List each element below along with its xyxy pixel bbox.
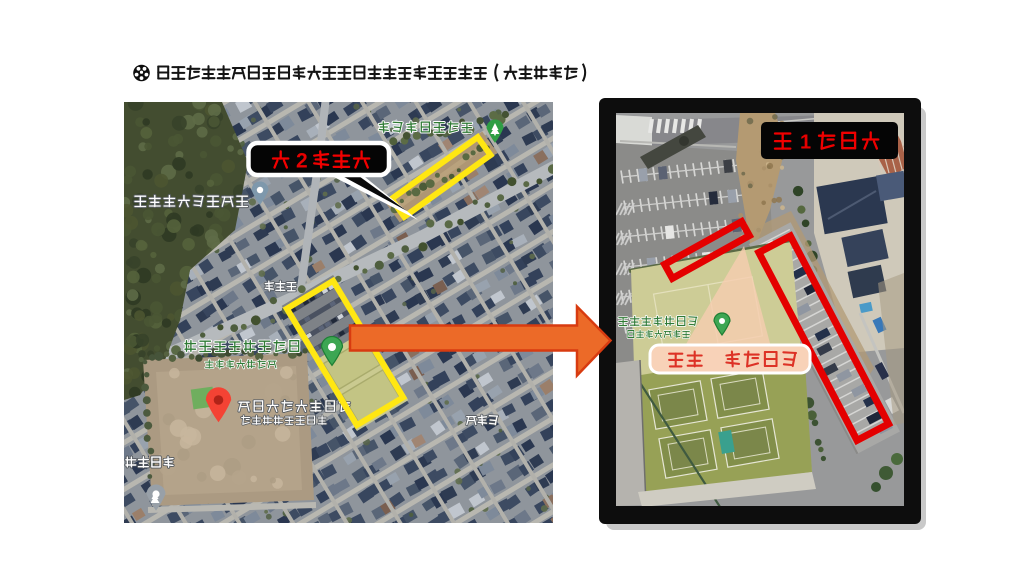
svg-text:1: 1 — [800, 132, 811, 154]
svg-text:2: 2 — [296, 150, 308, 173]
